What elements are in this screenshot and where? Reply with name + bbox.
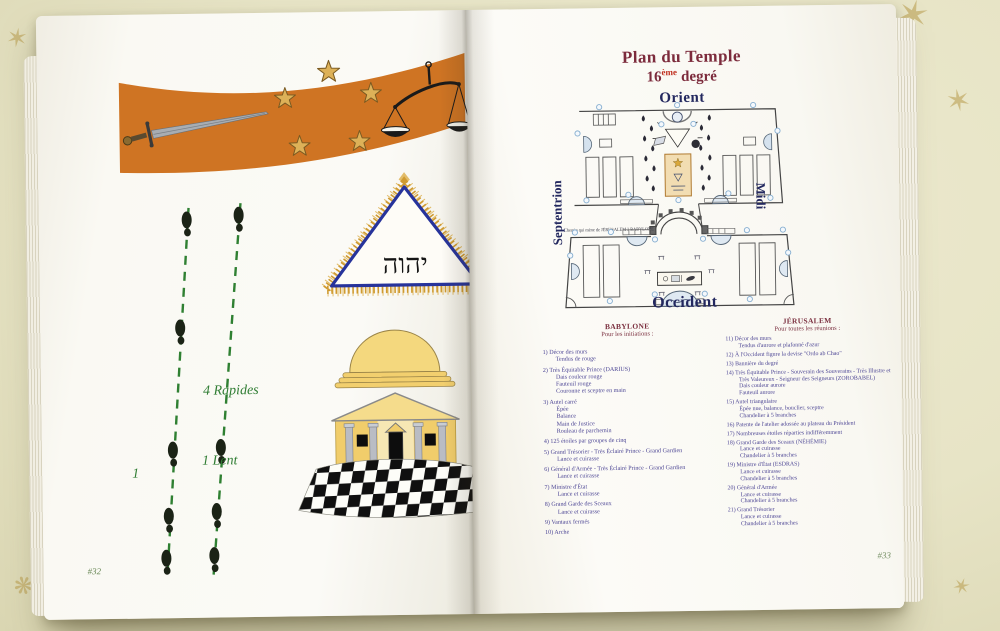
jerusalem-list: 11) Décor des mursTendus d'aurore et pla… [725, 334, 898, 530]
list-item: 21) Grand TrésorierLance et cuirasseChan… [728, 505, 898, 528]
plan-upper-furniture [583, 110, 772, 206]
compass-occident: Occident [515, 292, 855, 315]
footprint-icon [168, 442, 178, 467]
footprint-icon [175, 319, 185, 344]
babylone-list: 1) Décor des mursTendus de rouge2) Très … [543, 348, 716, 541]
banner-band [118, 53, 466, 174]
babylone-subtitle: Pour les initiations : [542, 330, 712, 339]
tetragrammaton-text: יהוה [383, 249, 428, 280]
list-item: 6) Général d'Armée - Très Éclairé Prince… [544, 465, 714, 482]
rapides-label: 4 Rapides [203, 383, 259, 400]
list-item: 13) Bannière du degré [726, 359, 896, 368]
list-item: 19) Ministre d'État (ESDRAS)Lance et cui… [727, 460, 897, 483]
compass-septentrion: Septentrion [549, 158, 567, 268]
list-item: 2) Très Équitable Prince (DARIUS)Dais co… [543, 365, 713, 397]
cloth-star-icon: ✶ [948, 572, 974, 603]
right-page-number: #33 [877, 550, 891, 560]
footprint-icon [234, 207, 244, 232]
babylone-header: BABYLONE Pour les initiations : [542, 321, 712, 339]
footprint-icon [182, 211, 192, 236]
book: 4 Rapides 1 Lent 1 יהוה [36, 4, 904, 620]
list-item: 14) Très Équitable Prince - Souverain de… [726, 368, 896, 398]
jerusalem-subtitle: Pour toutes les réunions : [722, 324, 892, 333]
plan-arch-bridge [650, 208, 708, 235]
list-item: 4) 125 étoiles par groupes de cinq [544, 437, 714, 447]
list-item: 7) Ministre d'ÉtatLance et cuirasse [544, 482, 714, 499]
list-item: 18) Grand Garde des Sceaux (NÉHÉMIE)Lanc… [727, 438, 897, 461]
list-item: 8) Grand Garde des SceauxLance et cuiras… [545, 500, 715, 517]
left-page-number: #32 [88, 566, 102, 576]
trail-start-label: 1 [132, 467, 139, 483]
degree-sup: ème [661, 67, 677, 77]
cloth-star-icon: ✶ [943, 82, 974, 121]
compass-midi: Midi [752, 166, 769, 226]
degree-word: degré [681, 69, 717, 85]
footprint-icon [161, 550, 171, 575]
list-item: 10) Arche [545, 528, 715, 538]
list-item: 5) Grand Trésorier - Très Éclairé Prince… [544, 447, 714, 464]
footprint-icon [164, 508, 174, 533]
cloth-star-icon: ✶ [4, 23, 30, 56]
degree-number: 16 [646, 69, 661, 85]
list-item: 17) Nombreuses étoiles réparties indiffé… [727, 429, 897, 438]
footprint-icon [209, 547, 219, 572]
list-item: 12) À l'Occident figure la devise "Ordo … [726, 350, 896, 359]
list-item: 16) Patente de l'atelier adossée au plat… [727, 420, 897, 429]
star-icon [317, 60, 339, 81]
list-item: 11) Décor des mursTendus d'aurore et pla… [725, 334, 895, 350]
right-page: Plan du Temple 16èmedegré Orient [466, 4, 904, 614]
footprint-icon [212, 503, 222, 528]
degree-subtitle: 16èmedegré [512, 65, 852, 89]
photo-background: ✶ ✶ ✶ ❋ ✶ [0, 0, 1000, 631]
banner-graphic [112, 48, 472, 183]
left-page: 4 Rapides 1 Lent 1 יהוה [36, 10, 474, 620]
list-item: 15) Autel triangulaireÉpée nue, balance,… [726, 397, 896, 420]
jerusalem-header: JÉRUSALEM Pour toutes les réunions : [722, 315, 892, 333]
list-item: 1) Décor des mursTendus de rouge [543, 348, 713, 365]
list-item: 9) Vantaux fermés [545, 518, 715, 528]
list-item: 3) Autel carréÉpéeBalanceMain de Justice… [543, 397, 713, 436]
lent-label: 1 Lent [202, 453, 238, 469]
list-item: 20) Général d'ArméeLance et cuirasseChan… [727, 483, 897, 506]
